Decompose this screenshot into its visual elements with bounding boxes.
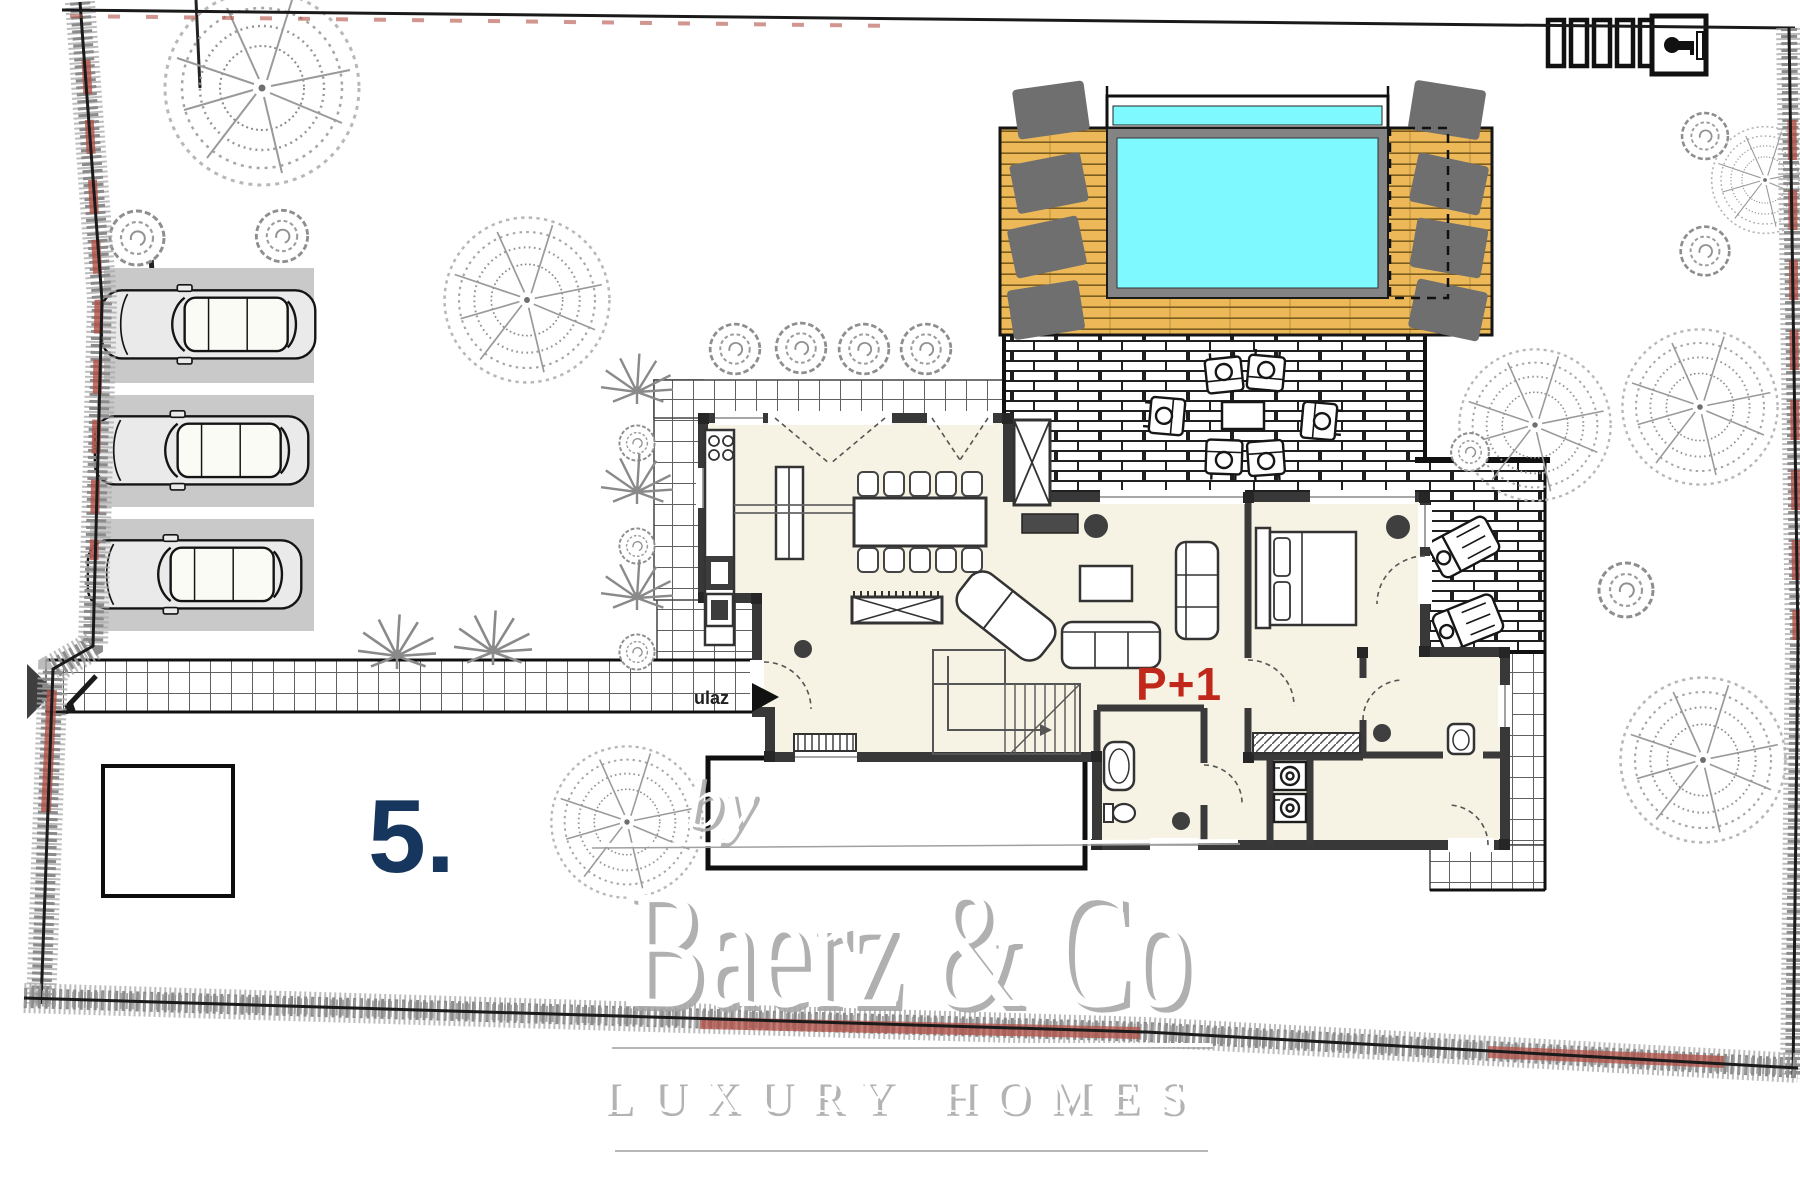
wardrobe	[1253, 733, 1360, 753]
bush	[1682, 113, 1728, 159]
entrance-label: ulaz	[694, 688, 729, 708]
dryer	[1274, 794, 1306, 822]
car	[102, 285, 315, 364]
sofa-2	[1176, 542, 1218, 639]
utility-pad	[103, 766, 233, 896]
floor-label: P+1	[1136, 658, 1222, 710]
patio-chair	[1300, 401, 1343, 440]
bush	[110, 211, 164, 265]
coffee-table	[1080, 566, 1132, 601]
bush	[619, 528, 654, 563]
bathroom-east	[1448, 724, 1474, 754]
bush	[1681, 227, 1730, 276]
patio-chair	[1246, 349, 1285, 392]
watermark-by: by	[686, 762, 756, 844]
bench-sideboard	[852, 591, 942, 623]
flue-box	[1014, 420, 1050, 505]
patio-chair	[1143, 396, 1186, 435]
headboard	[1256, 528, 1270, 628]
bush	[619, 425, 654, 460]
terrace-outline	[708, 758, 1085, 868]
bush	[839, 324, 889, 374]
toilet	[1104, 804, 1135, 822]
bush	[1451, 433, 1489, 471]
site-plan-page: P+1 ulaz	[0, 0, 1800, 1200]
patio-chair	[1204, 350, 1244, 394]
plot-number: 5.	[368, 779, 455, 895]
dining-area	[854, 472, 986, 572]
dining-table	[854, 498, 986, 546]
bush	[619, 634, 654, 669]
bush	[710, 324, 760, 374]
sun-lounger	[1012, 80, 1090, 140]
pool-strip-water	[1113, 106, 1382, 125]
washer	[1274, 762, 1306, 790]
car	[88, 535, 301, 614]
bush	[1599, 563, 1653, 617]
bathroom-south	[1104, 742, 1135, 822]
patio-chair	[1247, 440, 1286, 482]
bush	[901, 324, 951, 374]
car	[95, 411, 308, 490]
pool-area	[1000, 80, 1492, 342]
path-east	[1507, 652, 1545, 845]
watermark-tagline: LUXURY HOMES	[603, 1070, 1203, 1123]
parking-area	[88, 268, 315, 631]
bush	[256, 210, 307, 261]
driveway-path	[46, 660, 794, 712]
pool-water	[1117, 138, 1378, 288]
site-plan-drawing: P+1 ulaz	[0, 0, 1800, 1200]
bush	[776, 323, 826, 373]
patio-table	[1222, 402, 1264, 429]
tv-sideboard	[1022, 514, 1078, 533]
gate-key-icon	[1652, 16, 1706, 74]
radiator	[794, 734, 856, 751]
patio-chair	[1205, 439, 1242, 480]
